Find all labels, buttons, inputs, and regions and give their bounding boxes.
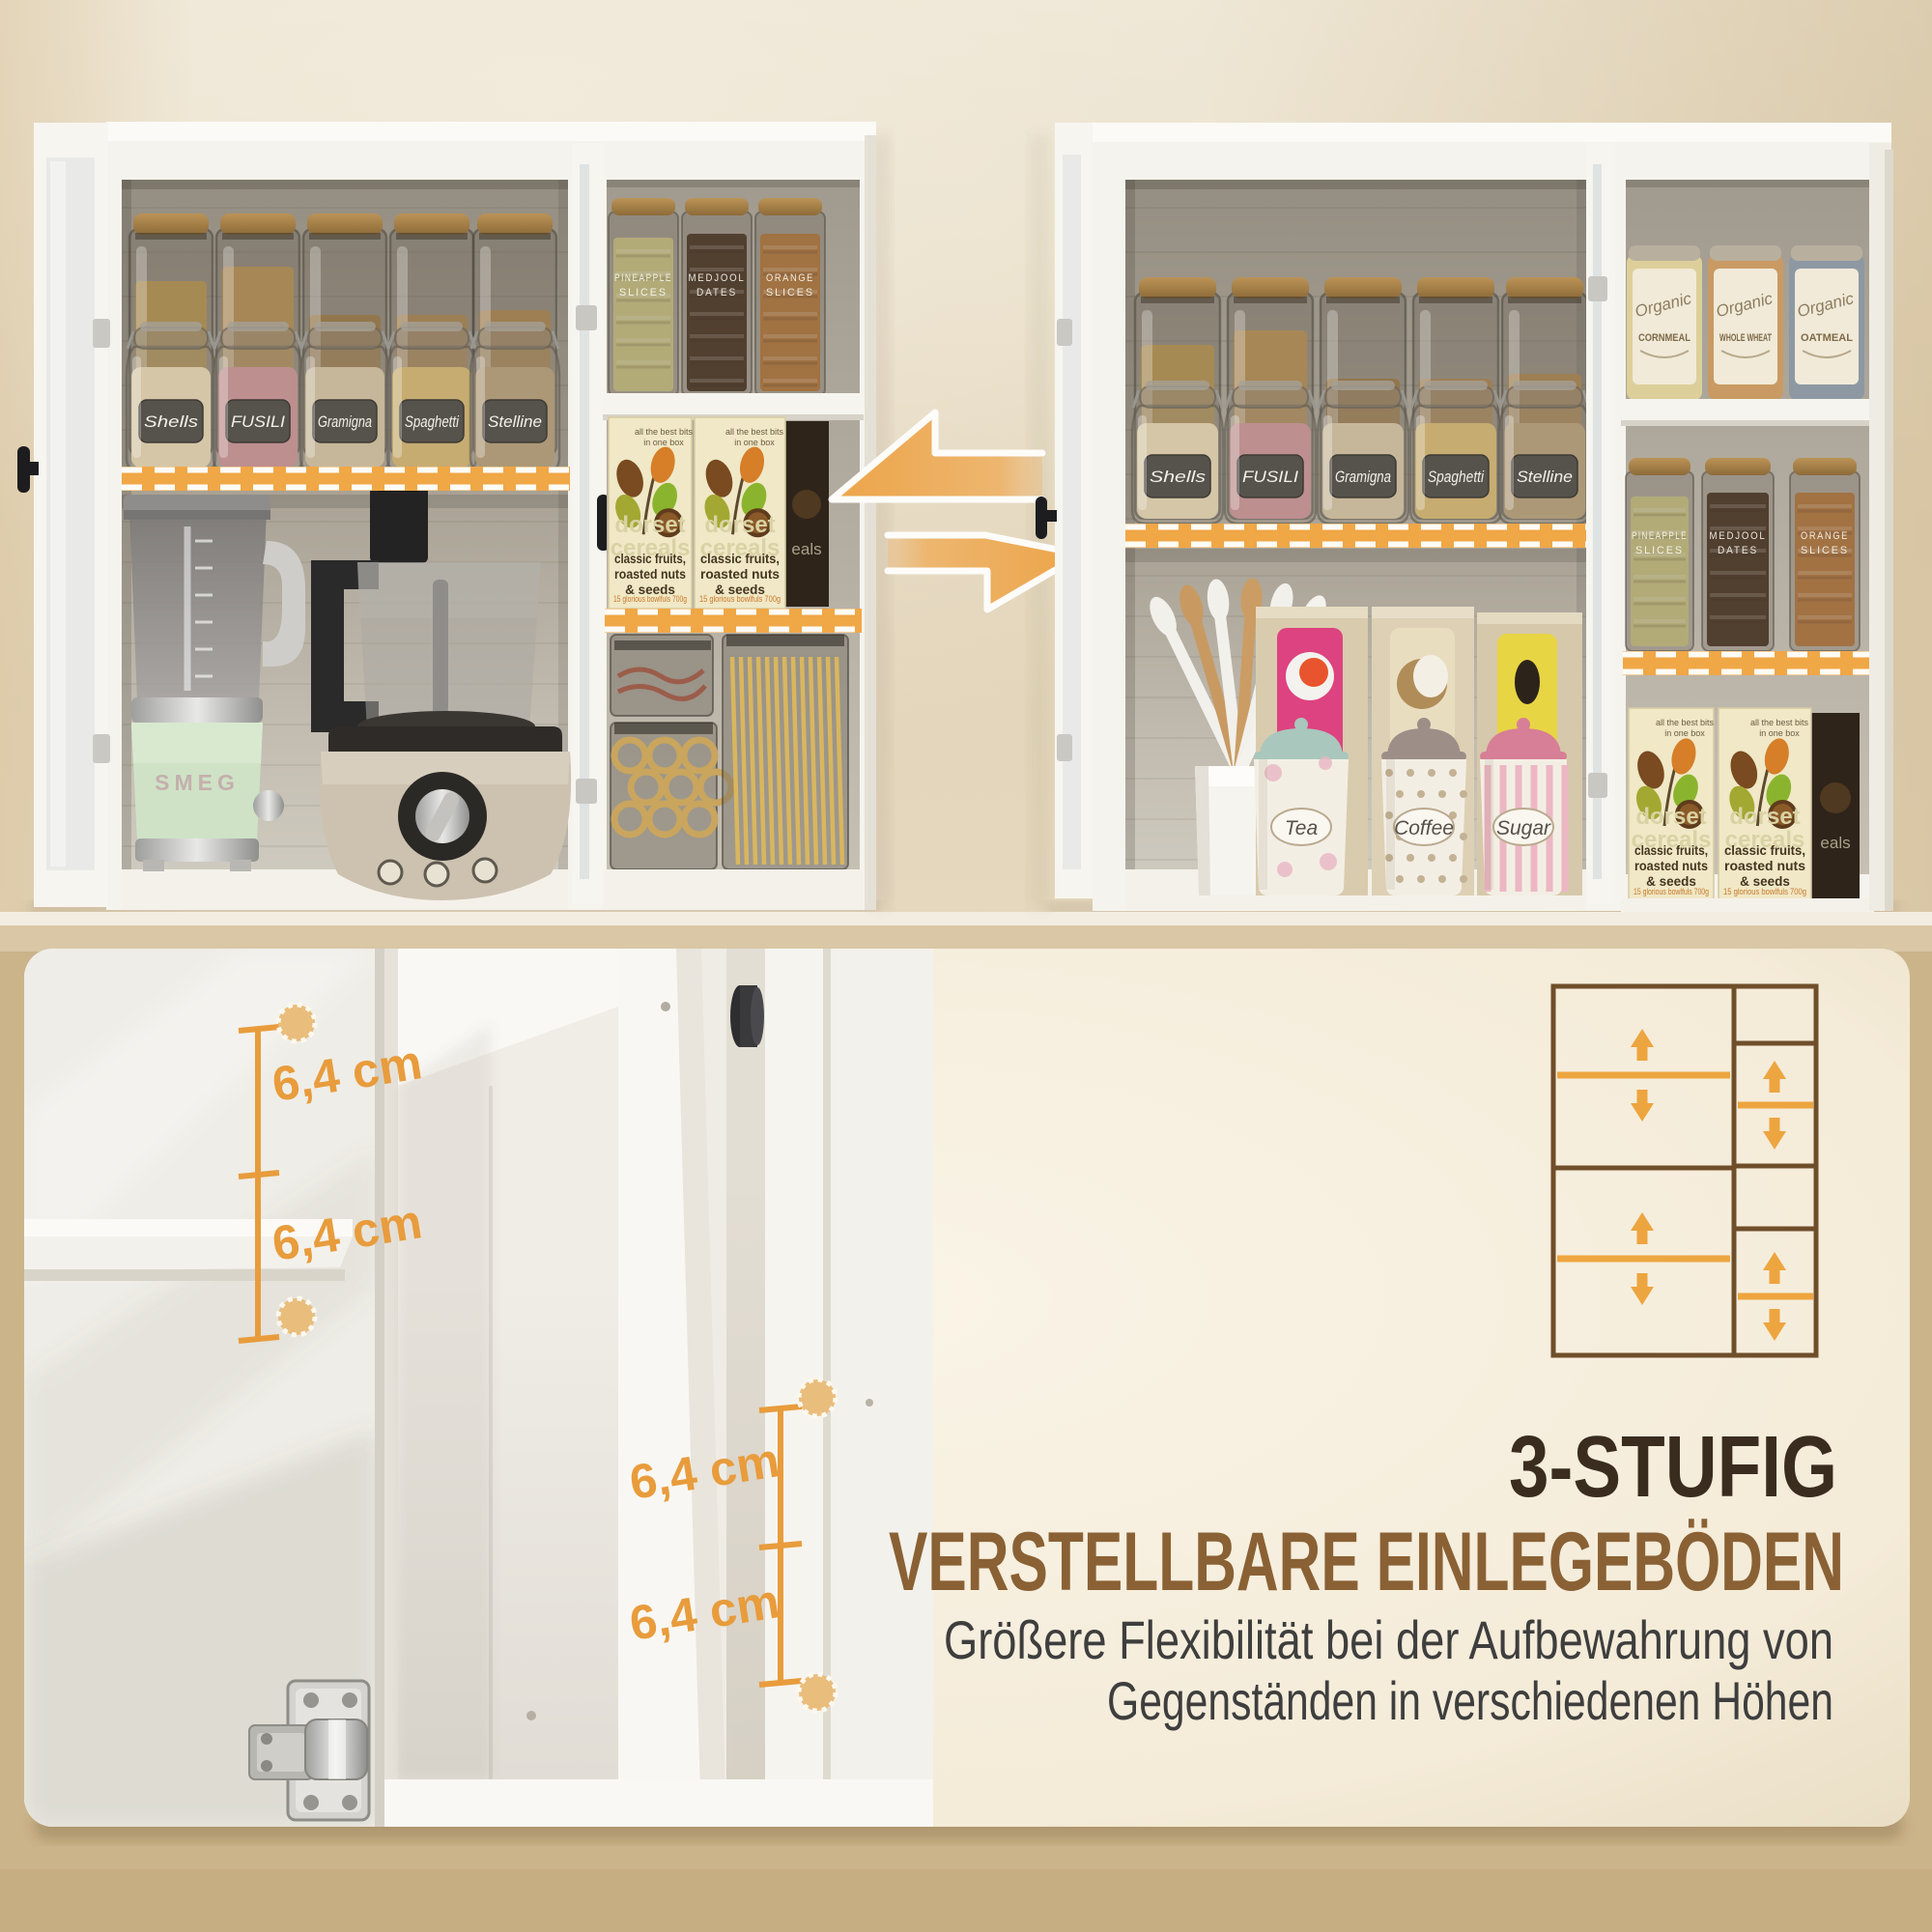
svg-text:classic fruits,: classic fruits, — [1634, 843, 1708, 858]
svg-text:SLICES: SLICES — [619, 287, 668, 298]
svg-text:DATES: DATES — [696, 287, 737, 298]
svg-text:15 glorious bowlfuls 700g: 15 glorious bowlfuls 700g — [699, 594, 781, 605]
svg-text:in one box: in one box — [734, 438, 775, 447]
svg-text:Gegenständen in verschiedenen: Gegenständen in verschiedenen Höhen — [1107, 1670, 1833, 1731]
svg-text:ORANGE: ORANGE — [766, 272, 814, 284]
svg-text:all the best bits: all the best bits — [725, 427, 784, 437]
svg-text:classic fruits,: classic fruits, — [1724, 843, 1805, 858]
svg-text:roasted nuts: roasted nuts — [1634, 859, 1708, 873]
svg-text:PINEAPPLE: PINEAPPLE — [1632, 530, 1688, 542]
svg-text:SMEG: SMEG — [155, 770, 240, 795]
svg-text:Gramigna: Gramigna — [1335, 468, 1391, 486]
svg-text:SLICES: SLICES — [1635, 545, 1684, 556]
svg-text:in one box: in one box — [1664, 728, 1705, 738]
svg-text:all the best bits: all the best bits — [1656, 718, 1715, 727]
svg-text:roasted nuts: roasted nuts — [614, 567, 686, 582]
svg-text:eals: eals — [791, 540, 821, 558]
svg-text:15 glorious bowlfuls 700g: 15 glorious bowlfuls 700g — [1634, 887, 1709, 897]
svg-text:Shells: Shells — [1150, 468, 1207, 486]
svg-text:classic fruits,: classic fruits, — [614, 552, 686, 566]
svg-text:SLICES: SLICES — [1801, 545, 1849, 556]
svg-text:VERSTELLBARE EINLEGEBÖDEN: VERSTELLBARE EINLEGEBÖDEN — [889, 1516, 1844, 1608]
svg-text:FUSILI: FUSILI — [1242, 468, 1298, 486]
svg-text:MEDJOOL: MEDJOOL — [689, 272, 746, 284]
svg-text:3-STUFIG: 3-STUFIG — [1509, 1419, 1837, 1516]
svg-text:in one box: in one box — [1759, 728, 1800, 738]
svg-text:Gramigna: Gramigna — [318, 412, 372, 431]
svg-text:MEDJOOL: MEDJOOL — [1710, 530, 1767, 542]
svg-text:Stelline: Stelline — [488, 412, 542, 431]
svg-text:15 glorious bowlfuls 700g: 15 glorious bowlfuls 700g — [613, 594, 687, 605]
svg-text:Tea: Tea — [1285, 817, 1318, 839]
svg-text:Shells: Shells — [144, 412, 199, 431]
svg-text:roasted nuts: roasted nuts — [1724, 859, 1805, 873]
svg-text:ORANGE: ORANGE — [1801, 530, 1849, 542]
svg-text:Spaghetti: Spaghetti — [1428, 468, 1485, 486]
svg-text:dorset: dorset — [1635, 804, 1706, 830]
svg-text:Größere Flexibilität bei der A: Größere Flexibilität bei der Aufbewahrun… — [944, 1609, 1833, 1670]
svg-text:dorset: dorset — [614, 512, 685, 538]
svg-text:SLICES: SLICES — [766, 287, 814, 298]
svg-text:FUSILI: FUSILI — [231, 412, 285, 431]
svg-text:Stelline: Stelline — [1517, 468, 1573, 486]
svg-text:Sugar: Sugar — [1496, 817, 1551, 839]
svg-text:dorset: dorset — [704, 512, 775, 538]
svg-text:WHOLE WHEAT: WHOLE WHEAT — [1719, 332, 1772, 344]
svg-text:OATMEAL: OATMEAL — [1801, 332, 1853, 344]
svg-text:roasted nuts: roasted nuts — [700, 567, 780, 582]
svg-text:Spaghetti: Spaghetti — [405, 412, 460, 431]
svg-text:PINEAPPLE: PINEAPPLE — [614, 272, 672, 284]
svg-text:all the best bits: all the best bits — [635, 427, 694, 437]
svg-text:Coffee: Coffee — [1394, 817, 1454, 839]
svg-text:in one box: in one box — [643, 438, 684, 447]
svg-text:eals: eals — [1820, 834, 1850, 852]
svg-text:all the best bits: all the best bits — [1750, 718, 1809, 727]
svg-text:15 glorious bowlfuls 700g: 15 glorious bowlfuls 700g — [1723, 887, 1806, 897]
svg-text:DATES: DATES — [1718, 545, 1758, 556]
svg-text:classic fruits,: classic fruits, — [700, 552, 780, 566]
svg-text:CORNMEAL: CORNMEAL — [1638, 332, 1690, 344]
svg-text:dorset: dorset — [1729, 804, 1800, 830]
